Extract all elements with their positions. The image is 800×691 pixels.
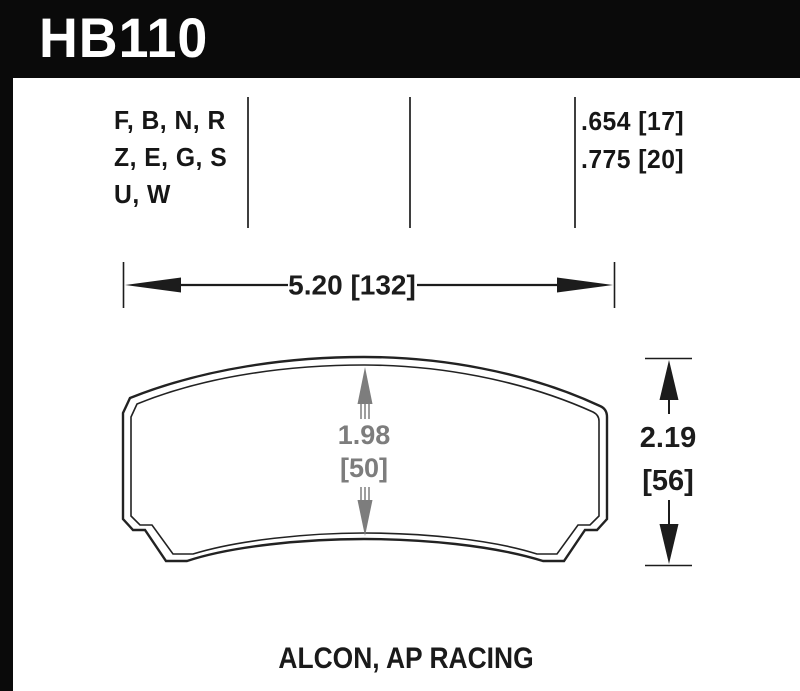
- separator-line: [409, 97, 411, 228]
- width-dim-label: 5.20 [132]: [288, 270, 416, 301]
- compound-letters: F, B, N, R Z, E, G, S U, W: [114, 102, 227, 213]
- overall-height-label-in: 2.19: [640, 422, 696, 454]
- separator-line: [247, 97, 249, 228]
- pad-height-dimension: 1.98 [50]: [338, 367, 391, 536]
- compound-row: U, W: [114, 176, 227, 213]
- pad-height-arrow-down-icon: [358, 500, 373, 536]
- height-arrow-down-icon: [660, 524, 679, 564]
- compound-row: Z, E, G, S: [114, 139, 227, 176]
- part-number: HB110: [39, 0, 208, 76]
- thickness-values: .654 [17] .775 [20]: [581, 102, 684, 178]
- applications-text: ALCON, AP RACING: [279, 644, 534, 674]
- thickness-row: .775 [20]: [581, 140, 684, 178]
- compound-row: F, B, N, R: [114, 102, 227, 139]
- part-number-banner: HB110: [0, 0, 800, 78]
- overall-height-dimension: 2.19 [56]: [640, 359, 696, 566]
- pad-height-label-mm: [50]: [340, 453, 388, 483]
- width-dimension: 5.20 [132]: [124, 262, 615, 308]
- height-arrow-up-icon: [660, 360, 679, 400]
- applications-footer: ALCON, AP RACING: [13, 644, 800, 674]
- pad-technical-drawing: 5.20 [132] 1.98 [50] 2.19 [56]: [0, 250, 800, 610]
- thickness-row: .654 [17]: [581, 102, 684, 140]
- pad-height-label-in: 1.98: [338, 420, 391, 450]
- separator-line: [574, 97, 576, 228]
- pad-height-arrow-up-icon: [358, 367, 373, 404]
- width-arrow-left-icon: [125, 278, 181, 293]
- brake-pad-spec-sheet: HB110 F, B, N, R Z, E, G, S U, W .654 [1…: [0, 0, 800, 691]
- width-arrow-right-icon: [557, 278, 613, 293]
- overall-height-label-mm: [56]: [642, 465, 694, 497]
